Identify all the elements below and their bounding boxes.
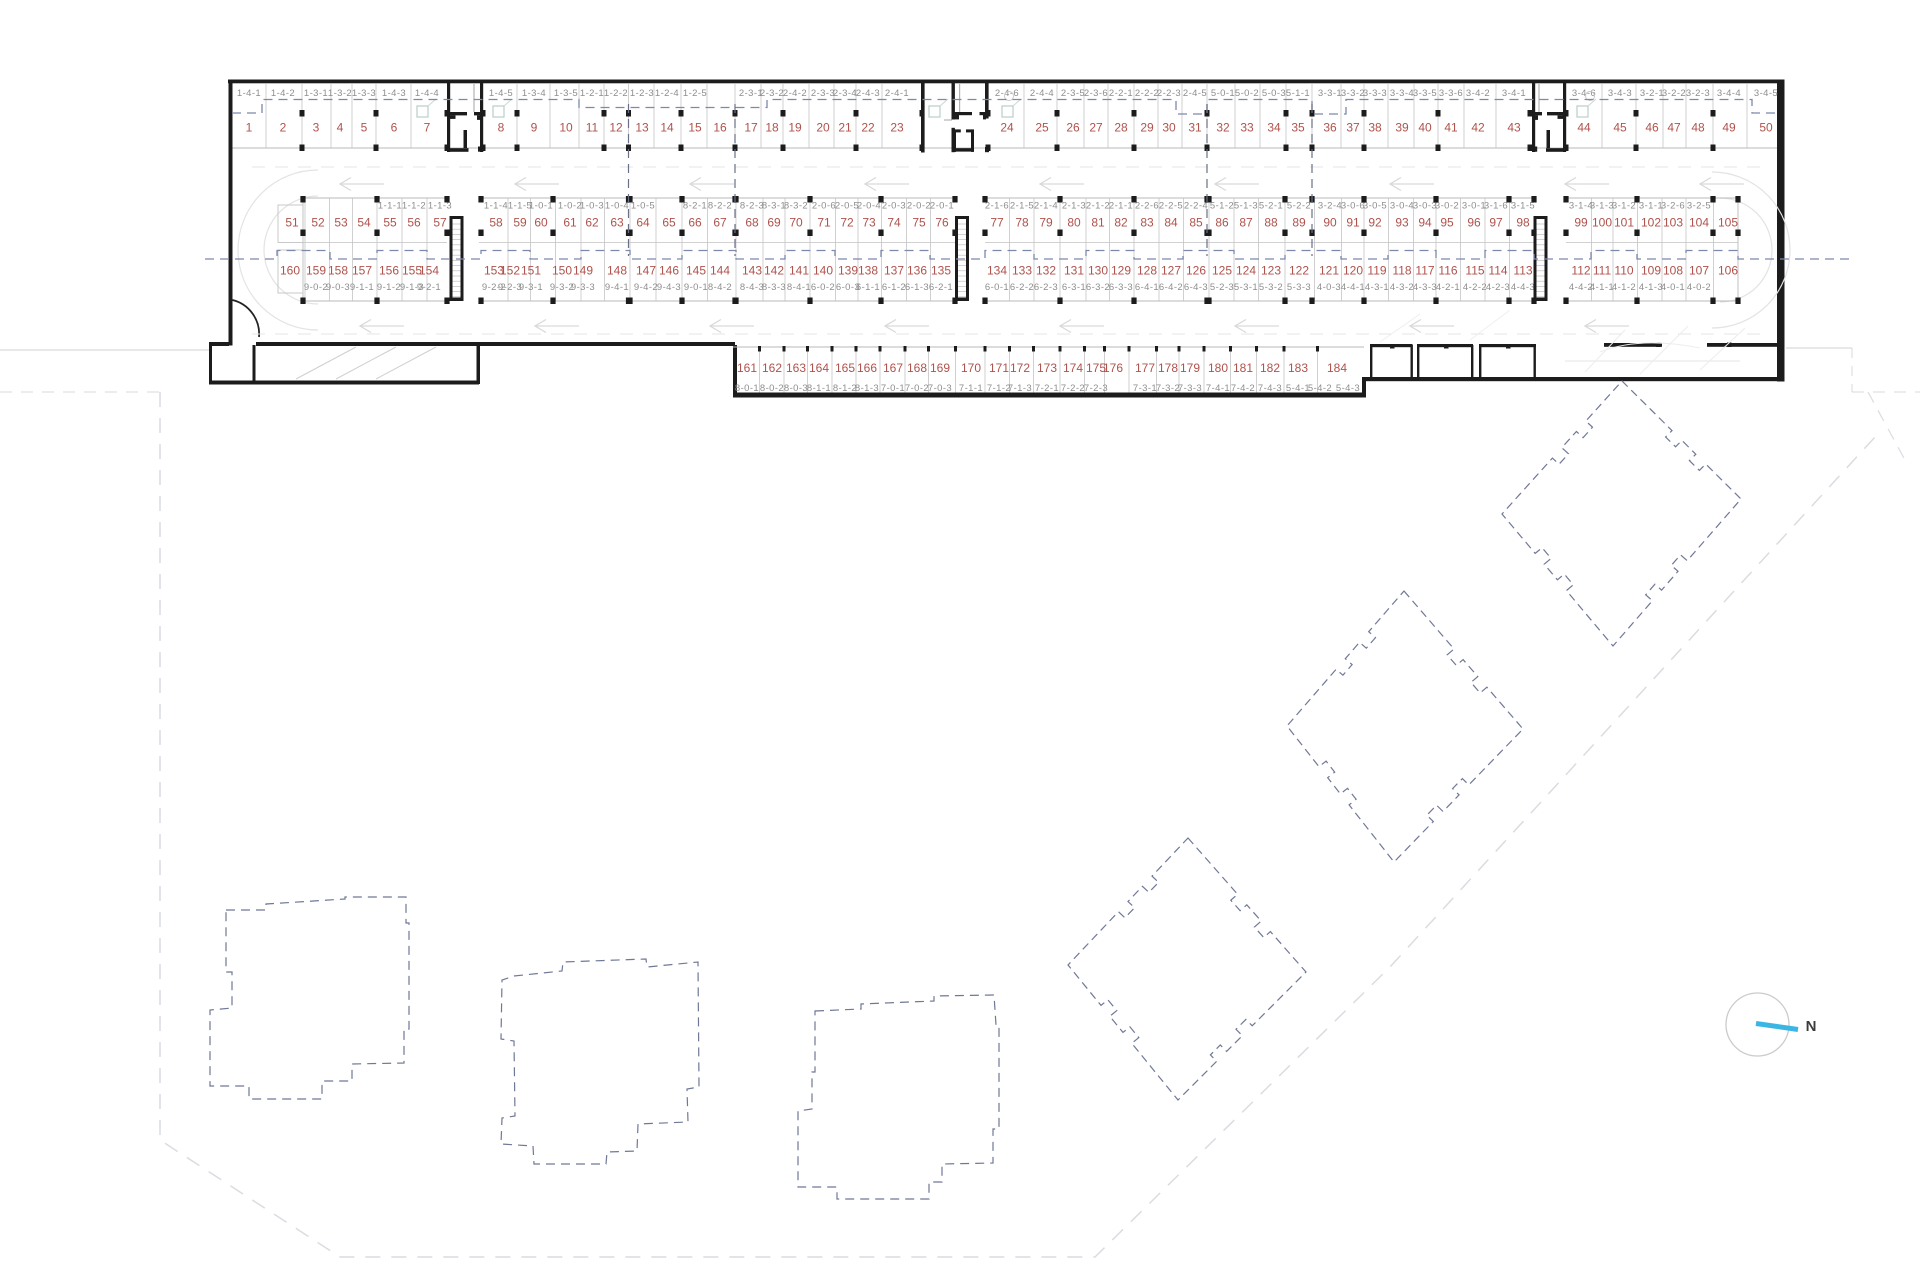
svg-text:1-0-1: 1-0-1	[529, 201, 553, 212]
svg-text:9: 9	[531, 121, 538, 135]
svg-text:2-1-1: 2-1-1	[1109, 201, 1133, 212]
svg-text:92: 92	[1368, 216, 1382, 230]
svg-text:9-3-3: 9-3-3	[571, 282, 595, 293]
svg-text:1-4-1: 1-4-1	[237, 88, 261, 99]
svg-text:8-2-2: 8-2-2	[708, 201, 732, 212]
svg-text:135: 135	[931, 264, 951, 278]
svg-text:182: 182	[1260, 361, 1280, 375]
svg-text:2-0-2: 2-0-2	[907, 201, 931, 212]
svg-text:3-3-6: 3-3-6	[1439, 88, 1463, 99]
svg-text:82: 82	[1114, 216, 1128, 230]
svg-text:2-3-6: 2-3-6	[1084, 88, 1108, 99]
svg-text:1-1-4: 1-1-4	[484, 201, 508, 212]
svg-text:2-2-3: 2-2-3	[1157, 88, 1181, 99]
svg-text:2-0-4: 2-0-4	[857, 201, 881, 212]
svg-text:110: 110	[1614, 264, 1633, 278]
svg-text:26: 26	[1066, 121, 1080, 135]
svg-text:141: 141	[789, 264, 809, 278]
svg-text:14: 14	[660, 121, 674, 135]
svg-text:143: 143	[742, 264, 762, 278]
svg-text:111: 111	[1593, 264, 1612, 278]
svg-text:3-3-4: 3-3-4	[1390, 88, 1414, 99]
svg-text:8-0-3: 8-0-3	[784, 383, 808, 394]
svg-text:45: 45	[1613, 121, 1627, 135]
svg-text:3: 3	[313, 121, 320, 135]
svg-text:127: 127	[1161, 264, 1181, 278]
svg-text:121: 121	[1319, 264, 1339, 278]
svg-text:3-2-2: 3-2-2	[1662, 88, 1686, 99]
svg-text:76: 76	[935, 216, 949, 230]
svg-text:4-0-3: 4-0-3	[1317, 282, 1341, 293]
svg-text:55: 55	[383, 216, 397, 230]
svg-text:7-2-2: 7-2-2	[1061, 383, 1085, 394]
svg-text:184: 184	[1327, 361, 1347, 375]
svg-text:8-4-2: 8-4-2	[708, 282, 732, 293]
svg-text:32: 32	[1216, 121, 1230, 135]
svg-text:90: 90	[1323, 216, 1337, 230]
svg-text:7-4-3: 7-4-3	[1258, 383, 1282, 394]
svg-text:48: 48	[1691, 121, 1705, 135]
svg-text:9-4-2: 9-4-2	[634, 282, 658, 293]
svg-text:126: 126	[1186, 264, 1206, 278]
svg-text:15: 15	[688, 121, 702, 135]
svg-text:2-2-1: 2-2-1	[1109, 88, 1133, 99]
svg-text:5-2-3: 5-2-3	[1210, 282, 1234, 293]
svg-text:5-1-3: 5-1-3	[1234, 201, 1258, 212]
svg-text:3-3-2: 3-3-2	[1341, 88, 1365, 99]
svg-text:6-2-1: 6-2-1	[929, 282, 953, 293]
svg-text:103: 103	[1663, 216, 1683, 230]
svg-text:137: 137	[884, 264, 904, 278]
svg-text:8-1-3: 8-1-3	[855, 383, 879, 394]
svg-text:3-1-6: 3-1-6	[1484, 201, 1508, 212]
svg-text:177: 177	[1135, 361, 1155, 375]
svg-text:100: 100	[1592, 216, 1612, 230]
svg-text:2-4-2: 2-4-2	[783, 88, 807, 99]
svg-text:162: 162	[762, 361, 782, 375]
svg-text:64: 64	[636, 216, 650, 230]
svg-text:161: 161	[737, 361, 757, 375]
svg-text:1-1-2: 1-1-2	[402, 201, 426, 212]
svg-text:9-2-1: 9-2-1	[417, 282, 441, 293]
svg-text:7-2-3: 7-2-3	[1084, 383, 1108, 394]
svg-text:2-0-1: 2-0-1	[930, 201, 954, 212]
svg-text:3-1-1: 3-1-1	[1639, 201, 1663, 212]
svg-text:94: 94	[1418, 216, 1432, 230]
svg-text:84: 84	[1164, 216, 1178, 230]
svg-text:97: 97	[1489, 216, 1503, 230]
svg-text:2-4-1: 2-4-1	[885, 88, 909, 99]
svg-text:8-3-2: 8-3-2	[784, 201, 808, 212]
svg-text:9-3-1: 9-3-1	[519, 282, 543, 293]
svg-text:68: 68	[745, 216, 759, 230]
svg-text:40: 40	[1418, 121, 1432, 135]
svg-text:8-1-2: 8-1-2	[833, 383, 857, 394]
svg-text:57: 57	[433, 216, 447, 230]
svg-text:65: 65	[662, 216, 676, 230]
svg-text:1-2-1: 1-2-1	[580, 88, 604, 99]
svg-text:3-4-1: 3-4-1	[1502, 88, 1526, 99]
svg-text:74: 74	[887, 216, 901, 230]
svg-text:86: 86	[1215, 216, 1229, 230]
svg-text:51: 51	[285, 216, 299, 230]
svg-text:1-2-4: 1-2-4	[655, 88, 679, 99]
svg-text:30: 30	[1162, 121, 1176, 135]
svg-text:2-3-3: 2-3-3	[811, 88, 835, 99]
svg-text:170: 170	[961, 361, 981, 375]
svg-text:53: 53	[334, 216, 348, 230]
svg-text:149: 149	[573, 264, 593, 278]
svg-text:119: 119	[1367, 264, 1386, 278]
svg-text:4-4-3: 4-4-3	[1511, 282, 1535, 293]
svg-text:1-0-2: 1-0-2	[558, 201, 582, 212]
svg-text:7-4-2: 7-4-2	[1231, 383, 1255, 394]
svg-text:42: 42	[1471, 121, 1485, 135]
svg-text:50: 50	[1759, 121, 1773, 135]
svg-text:93: 93	[1395, 216, 1409, 230]
svg-text:24: 24	[1000, 121, 1014, 135]
svg-text:113: 113	[1513, 264, 1532, 278]
svg-text:95: 95	[1440, 216, 1454, 230]
svg-text:176: 176	[1103, 361, 1123, 375]
svg-text:9-1-1: 9-1-1	[350, 282, 374, 293]
svg-text:96: 96	[1467, 216, 1481, 230]
svg-text:147: 147	[636, 264, 656, 278]
svg-text:1-3-3: 1-3-3	[352, 88, 376, 99]
svg-text:157: 157	[352, 264, 372, 278]
svg-text:11: 11	[586, 121, 599, 135]
svg-text:2-4-3: 2-4-3	[856, 88, 880, 99]
svg-text:67: 67	[713, 216, 727, 230]
svg-text:3-0-4: 3-0-4	[1390, 201, 1414, 212]
svg-text:85: 85	[1189, 216, 1203, 230]
svg-text:3-4-5: 3-4-5	[1754, 88, 1778, 99]
svg-text:7-4-1: 7-4-1	[1206, 383, 1230, 394]
svg-text:17: 17	[744, 121, 758, 135]
svg-text:1-3-4: 1-3-4	[522, 88, 546, 99]
svg-text:7-3-2: 7-3-2	[1156, 383, 1180, 394]
svg-text:3-1-2: 3-1-2	[1612, 201, 1636, 212]
svg-text:7: 7	[424, 121, 431, 135]
svg-text:105: 105	[1718, 216, 1738, 230]
svg-text:63: 63	[610, 216, 624, 230]
svg-text:2-0-3: 2-0-3	[882, 201, 906, 212]
svg-text:34: 34	[1267, 121, 1281, 135]
svg-text:4-2-2: 4-2-2	[1463, 282, 1487, 293]
svg-text:20: 20	[816, 121, 830, 135]
svg-text:36: 36	[1323, 121, 1337, 135]
svg-text:47: 47	[1667, 121, 1681, 135]
svg-text:39: 39	[1395, 121, 1409, 135]
svg-text:133: 133	[1012, 264, 1032, 278]
svg-text:160: 160	[280, 264, 300, 278]
svg-text:5-0-3: 5-0-3	[1262, 88, 1286, 99]
svg-text:122: 122	[1289, 264, 1309, 278]
svg-text:4-3-3: 4-3-3	[1413, 282, 1437, 293]
svg-text:1-4-4: 1-4-4	[415, 88, 439, 99]
svg-text:81: 81	[1091, 216, 1105, 230]
svg-text:2-1-5: 2-1-5	[1010, 201, 1034, 212]
svg-text:5-0-2: 5-0-2	[1235, 88, 1259, 99]
svg-text:2-1-3: 2-1-3	[1062, 201, 1086, 212]
svg-text:112: 112	[1571, 264, 1590, 278]
svg-text:4-3-1: 4-3-1	[1365, 282, 1389, 293]
svg-text:4-0-2: 4-0-2	[1687, 282, 1711, 293]
svg-text:1-2-2: 1-2-2	[604, 88, 628, 99]
svg-text:3-4-3: 3-4-3	[1608, 88, 1632, 99]
svg-text:56: 56	[407, 216, 421, 230]
svg-text:9-0-3: 9-0-3	[326, 282, 350, 293]
svg-text:91: 91	[1346, 216, 1360, 230]
svg-text:4-0-1: 4-0-1	[1661, 282, 1685, 293]
svg-text:8-3-1: 8-3-1	[762, 201, 786, 212]
svg-text:2-2-6: 2-2-6	[1135, 201, 1159, 212]
svg-text:7-3-3: 7-3-3	[1178, 383, 1202, 394]
svg-text:117: 117	[1415, 264, 1434, 278]
svg-text:5-1-2: 5-1-2	[1210, 201, 1234, 212]
svg-text:104: 104	[1689, 216, 1709, 230]
svg-text:46: 46	[1645, 121, 1659, 135]
svg-text:89: 89	[1292, 216, 1306, 230]
svg-text:37: 37	[1346, 121, 1360, 135]
svg-text:107: 107	[1689, 264, 1709, 278]
svg-text:173: 173	[1037, 361, 1057, 375]
svg-text:6-4-2: 6-4-2	[1159, 282, 1183, 293]
svg-text:28: 28	[1114, 121, 1128, 135]
svg-text:2-2-2: 2-2-2	[1135, 88, 1159, 99]
svg-text:183: 183	[1288, 361, 1308, 375]
svg-text:4-1-1: 4-1-1	[1590, 282, 1614, 293]
svg-text:8-2-3: 8-2-3	[740, 201, 764, 212]
svg-text:139: 139	[838, 264, 858, 278]
svg-text:2-3-4: 2-3-4	[833, 88, 857, 99]
svg-text:169: 169	[930, 361, 950, 375]
svg-text:148: 148	[607, 264, 627, 278]
svg-text:129: 129	[1111, 264, 1131, 278]
svg-text:4-2-1: 4-2-1	[1436, 282, 1460, 293]
svg-text:6-4-1: 6-4-1	[1135, 282, 1159, 293]
svg-text:7-0-3: 7-0-3	[928, 383, 952, 394]
svg-text:8-1-1: 8-1-1	[807, 383, 831, 394]
svg-text:78: 78	[1015, 216, 1029, 230]
svg-text:163: 163	[786, 361, 806, 375]
svg-text:9-4-3: 9-4-3	[657, 282, 681, 293]
svg-text:6-2-3: 6-2-3	[1034, 282, 1058, 293]
svg-text:1-4-2: 1-4-2	[271, 88, 295, 99]
svg-text:7-1-3: 7-1-3	[1008, 383, 1032, 394]
svg-text:3-0-1: 3-0-1	[1462, 201, 1486, 212]
svg-text:114: 114	[1488, 264, 1507, 278]
svg-text:7-2-1: 7-2-1	[1035, 383, 1059, 394]
svg-text:12: 12	[609, 121, 623, 135]
svg-text:136: 136	[907, 264, 927, 278]
svg-text:1-4-3: 1-4-3	[382, 88, 406, 99]
svg-text:123: 123	[1261, 264, 1281, 278]
svg-text:106: 106	[1718, 264, 1738, 278]
svg-text:125: 125	[1212, 264, 1232, 278]
svg-text:167: 167	[883, 361, 903, 375]
svg-text:29: 29	[1140, 121, 1154, 135]
svg-text:1: 1	[246, 121, 253, 135]
svg-text:80: 80	[1067, 216, 1081, 230]
svg-text:44: 44	[1577, 121, 1591, 135]
svg-text:130: 130	[1088, 264, 1108, 278]
svg-text:6-4-3: 6-4-3	[1184, 282, 1208, 293]
svg-text:71: 71	[817, 216, 831, 230]
svg-text:3-4-2: 3-4-2	[1466, 88, 1490, 99]
svg-text:8: 8	[498, 121, 505, 135]
svg-text:181: 181	[1233, 361, 1253, 375]
svg-text:83: 83	[1140, 216, 1154, 230]
svg-text:5-0-1: 5-0-1	[1211, 88, 1235, 99]
svg-text:3-3-1: 3-3-1	[1318, 88, 1342, 99]
svg-text:179: 179	[1180, 361, 1200, 375]
svg-text:4-4-1: 4-4-1	[1341, 282, 1365, 293]
svg-text:2-1-6: 2-1-6	[985, 201, 1009, 212]
svg-text:171: 171	[989, 361, 1009, 375]
svg-text:59: 59	[513, 216, 527, 230]
svg-text:21: 21	[838, 121, 852, 135]
svg-text:3-3-3: 3-3-3	[1363, 88, 1387, 99]
svg-text:2-1-4: 2-1-4	[1034, 201, 1058, 212]
svg-text:2-2-5: 2-2-5	[1159, 201, 1183, 212]
svg-text:134: 134	[987, 264, 1007, 278]
svg-text:75: 75	[912, 216, 926, 230]
svg-text:58: 58	[489, 216, 503, 230]
svg-text:7-0-1: 7-0-1	[881, 383, 905, 394]
svg-text:72: 72	[840, 216, 854, 230]
svg-text:38: 38	[1368, 121, 1382, 135]
svg-text:25: 25	[1035, 121, 1049, 135]
svg-text:33: 33	[1240, 121, 1254, 135]
svg-text:4-3-2: 4-3-2	[1390, 282, 1414, 293]
svg-text:115: 115	[1465, 264, 1484, 278]
svg-text:116: 116	[1438, 264, 1457, 278]
svg-text:174: 174	[1063, 361, 1083, 375]
svg-text:7-3-1: 7-3-1	[1133, 383, 1157, 394]
svg-text:70: 70	[789, 216, 803, 230]
svg-text:138: 138	[858, 264, 878, 278]
svg-text:142: 142	[764, 264, 784, 278]
svg-text:99: 99	[1574, 216, 1588, 230]
svg-text:132: 132	[1036, 264, 1056, 278]
svg-text:5-4-3: 5-4-3	[1336, 383, 1360, 394]
svg-text:1-2-5: 1-2-5	[683, 88, 707, 99]
svg-text:49: 49	[1722, 121, 1736, 135]
svg-text:13: 13	[635, 121, 649, 135]
svg-text:5-2-2: 5-2-2	[1287, 201, 1311, 212]
svg-text:10: 10	[559, 121, 573, 135]
svg-text:6: 6	[391, 121, 398, 135]
svg-text:8-0-1: 8-0-1	[735, 383, 759, 394]
svg-text:6-3-3: 6-3-3	[1109, 282, 1133, 293]
svg-text:178: 178	[1158, 361, 1178, 375]
svg-text:102: 102	[1641, 216, 1661, 230]
svg-text:6-0-1: 6-0-1	[985, 282, 1009, 293]
svg-text:66: 66	[688, 216, 702, 230]
svg-text:31: 31	[1188, 121, 1202, 135]
svg-text:3-2-4: 3-2-4	[1318, 201, 1342, 212]
svg-text:3-1-3: 3-1-3	[1590, 201, 1614, 212]
svg-text:9-0-2: 9-0-2	[304, 282, 328, 293]
svg-text:3-4-4: 3-4-4	[1717, 88, 1741, 99]
svg-text:2-3-2: 2-3-2	[760, 88, 784, 99]
svg-text:69: 69	[767, 216, 781, 230]
svg-text:43: 43	[1507, 121, 1521, 135]
svg-text:146: 146	[659, 264, 679, 278]
svg-text:5: 5	[361, 121, 368, 135]
svg-text:18: 18	[765, 121, 779, 135]
svg-text:60: 60	[534, 216, 548, 230]
svg-text:62: 62	[585, 216, 599, 230]
svg-text:154: 154	[419, 264, 439, 278]
svg-text:2-0-5: 2-0-5	[835, 201, 859, 212]
svg-text:98: 98	[1516, 216, 1530, 230]
svg-text:22: 22	[861, 121, 875, 135]
svg-text:41: 41	[1444, 121, 1458, 135]
svg-text:1-0-3: 1-0-3	[580, 201, 604, 212]
svg-text:145: 145	[686, 264, 706, 278]
svg-text:6-3-1: 6-3-1	[1062, 282, 1086, 293]
svg-text:54: 54	[357, 216, 371, 230]
svg-text:128: 128	[1137, 264, 1157, 278]
svg-text:3-2-6: 3-2-6	[1661, 201, 1685, 212]
svg-text:73: 73	[862, 216, 876, 230]
svg-text:N: N	[1806, 1018, 1817, 1035]
svg-text:2: 2	[280, 121, 287, 135]
svg-text:9-1-2: 9-1-2	[377, 282, 401, 293]
svg-text:4: 4	[337, 121, 344, 135]
svg-text:124: 124	[1236, 264, 1256, 278]
svg-text:9-0-1: 9-0-1	[684, 282, 708, 293]
svg-text:108: 108	[1663, 264, 1683, 278]
svg-text:159: 159	[306, 264, 326, 278]
svg-text:168: 168	[907, 361, 927, 375]
svg-text:7-1-1: 7-1-1	[959, 383, 983, 394]
svg-text:3-2-5: 3-2-5	[1687, 201, 1711, 212]
svg-text:158: 158	[328, 264, 348, 278]
svg-text:1-3-5: 1-3-5	[554, 88, 578, 99]
svg-text:3-4-6: 3-4-6	[1572, 88, 1596, 99]
svg-text:2-4-5: 2-4-5	[1183, 88, 1207, 99]
svg-text:151: 151	[521, 264, 541, 278]
svg-text:19: 19	[788, 121, 802, 135]
svg-text:1-0-4: 1-0-4	[605, 201, 629, 212]
svg-text:3-2-1: 3-2-1	[1640, 88, 1664, 99]
svg-text:6-2-2: 6-2-2	[1010, 282, 1034, 293]
svg-text:6-0-2: 6-0-2	[811, 282, 835, 293]
svg-text:2-4-4: 2-4-4	[1030, 88, 1054, 99]
svg-text:5-1-1: 5-1-1	[1286, 88, 1310, 99]
svg-text:35: 35	[1291, 121, 1305, 135]
svg-text:5-3-3: 5-3-3	[1287, 282, 1311, 293]
svg-text:9-4-1: 9-4-1	[605, 282, 629, 293]
svg-text:7-0-2: 7-0-2	[905, 383, 929, 394]
svg-text:1-2-3: 1-2-3	[630, 88, 654, 99]
svg-text:27: 27	[1089, 121, 1103, 135]
svg-text:140: 140	[813, 264, 833, 278]
svg-text:1-3-1: 1-3-1	[304, 88, 328, 99]
svg-text:79: 79	[1039, 216, 1053, 230]
svg-text:172: 172	[1010, 361, 1030, 375]
svg-text:6-1-2: 6-1-2	[882, 282, 906, 293]
svg-text:6-1-3: 6-1-3	[905, 282, 929, 293]
svg-text:150: 150	[552, 264, 572, 278]
svg-text:2-0-6: 2-0-6	[812, 201, 836, 212]
svg-text:2-3-5: 2-3-5	[1061, 88, 1085, 99]
svg-text:8-0-2: 8-0-2	[760, 383, 784, 394]
svg-text:6-1-1: 6-1-1	[856, 282, 880, 293]
